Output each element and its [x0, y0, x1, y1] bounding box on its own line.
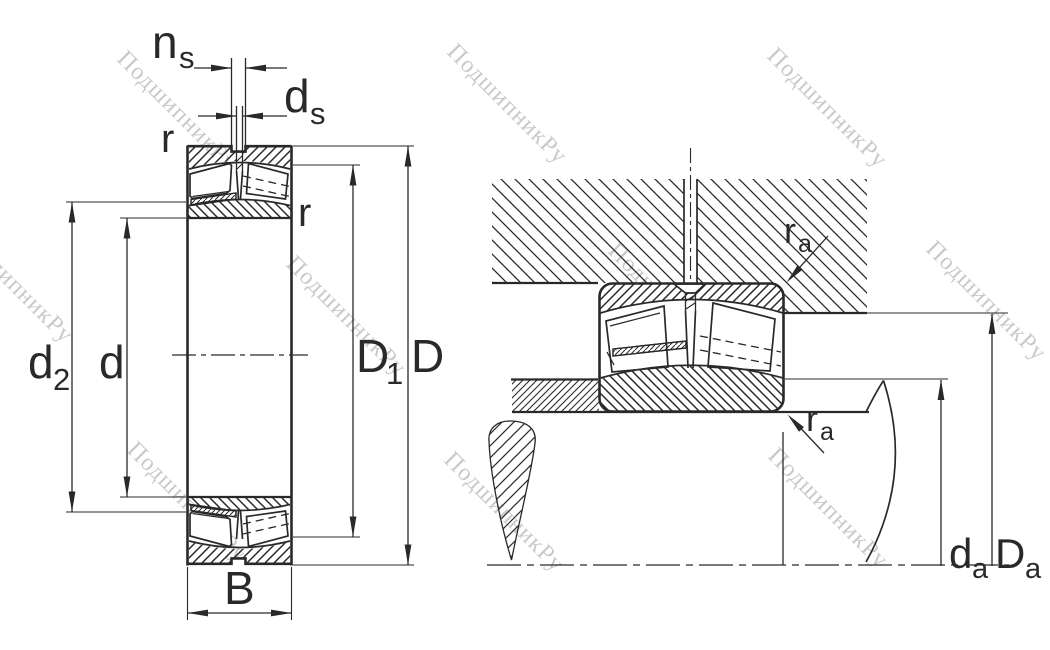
- dimension-Da: [989, 314, 996, 567]
- label-r-inner: r: [298, 191, 311, 235]
- right-mounted-view: [487, 148, 1009, 566]
- label-D1: D: [356, 330, 389, 382]
- watermark-text: ПодшипникРу: [442, 39, 573, 170]
- mounted-bearing-section: [600, 284, 784, 412]
- label-D: D: [411, 330, 444, 382]
- label-ra-shaft-sub: a: [820, 418, 834, 446]
- label-ds: d: [284, 70, 310, 122]
- label-d: d: [99, 336, 125, 388]
- shaft-abutment-collar: [511, 380, 599, 412]
- watermark-text: ПодшипникРу: [0, 218, 78, 349]
- label-ra-shaft: r: [806, 398, 818, 439]
- label-B: B: [224, 562, 255, 614]
- drawing-canvas: ПодшипникРу ПодшипникРу ПодшипникРу Подш…: [0, 0, 1050, 650]
- dimension-da: [938, 380, 945, 567]
- watermark-text: ПодшипникРу: [921, 236, 1050, 367]
- label-Da: D: [995, 530, 1025, 577]
- label-Da-sub: a: [1025, 553, 1042, 585]
- label-d2-sub: 2: [53, 362, 70, 397]
- label-ns: n: [152, 16, 178, 68]
- bearing-mounting-drawing: ПодшипникРу ПодшипникРу ПодшипникРу Подш…: [0, 0, 1050, 650]
- dimension-d2: [69, 202, 76, 512]
- dimension-ns: [194, 65, 287, 72]
- label-d2: d: [28, 336, 54, 388]
- label-da-sub: a: [972, 553, 989, 585]
- label-ra-housing: r: [784, 210, 796, 251]
- label-r-outer: r: [161, 117, 174, 161]
- watermark-text: ПодшипникРу: [762, 43, 893, 174]
- shaft-shoulder-fillet: [866, 381, 884, 413]
- ra-leader-shaft: [785, 412, 824, 453]
- label-ra-housing-sub: a: [798, 230, 812, 258]
- label-ds-sub: s: [310, 96, 326, 131]
- watermark-text: ПодшипникРу: [763, 443, 894, 574]
- label-D1-sub: 1: [386, 356, 403, 391]
- label-da: d: [949, 530, 972, 577]
- label-ns-sub: s: [179, 40, 195, 75]
